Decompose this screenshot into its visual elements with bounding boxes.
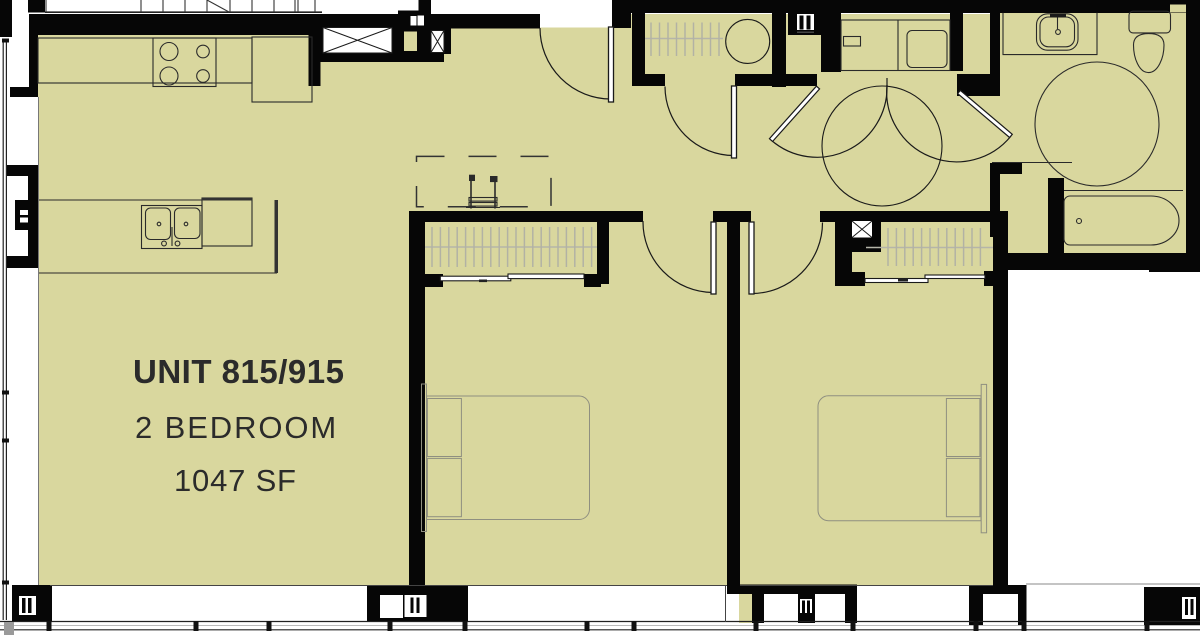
svg-text:2 BEDROOM: 2 BEDROOM <box>135 410 338 445</box>
svg-text:1047 SF: 1047 SF <box>174 463 297 498</box>
svg-text:UNIT 815/915: UNIT 815/915 <box>133 353 344 390</box>
